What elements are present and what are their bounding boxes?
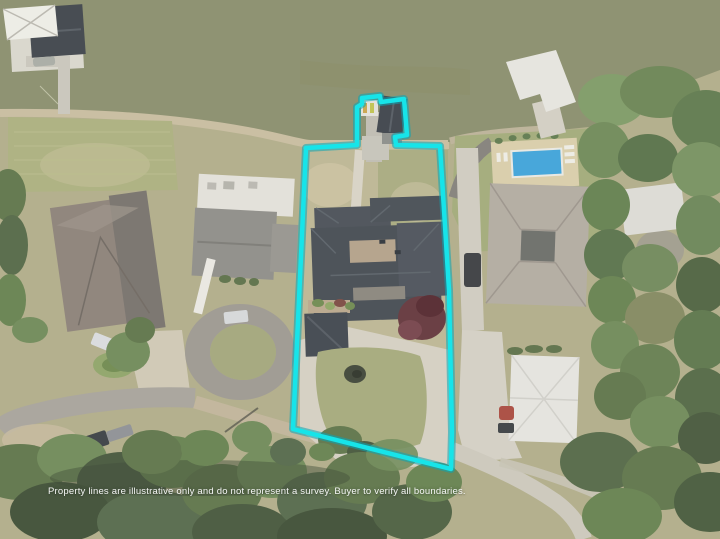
aerial-photo: Property lines are illustrative only and… xyxy=(0,0,720,539)
disclaimer-text: Property lines are illustrative only and… xyxy=(48,486,466,497)
haze-overlay xyxy=(0,0,720,539)
